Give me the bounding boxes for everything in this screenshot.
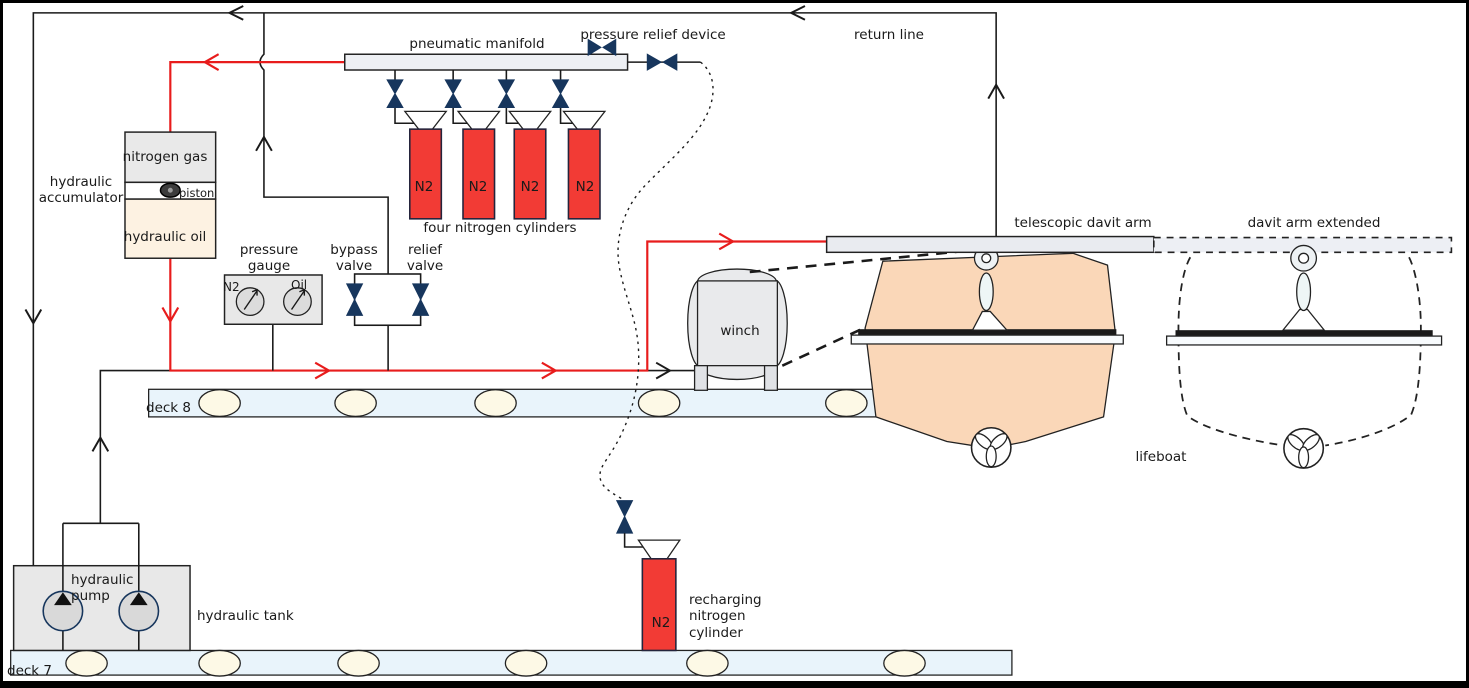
n2-cylinder (642, 559, 676, 651)
return-line-path (25, 6, 1004, 566)
lifeboat-extended-outline (1167, 245, 1442, 468)
bypass-valve-icon (347, 284, 363, 316)
n2-cylinder (410, 129, 442, 219)
diagram-canvas (3, 3, 1466, 681)
recharge-hose-dotted (600, 62, 713, 499)
n2-cylinder (463, 129, 495, 219)
telescopic-davit-arm (827, 237, 1154, 253)
deck-7-band (11, 650, 1012, 676)
lifting-beam (1175, 330, 1432, 336)
pressure-gauge-panel (225, 275, 323, 371)
recharge-isolation-valve-icon (628, 54, 701, 70)
hydraulic-tank (14, 566, 190, 651)
propeller-icon (1284, 429, 1323, 468)
winch (688, 269, 788, 390)
bypass-relief-valve-loop (347, 274, 429, 371)
winch-feed-line (647, 363, 699, 379)
relief-valve-icon (413, 284, 429, 316)
propeller-icon (972, 428, 1011, 467)
deck-8-band (149, 389, 882, 417)
manifold-branch-line (256, 13, 388, 274)
hydraulic-accumulator (125, 132, 216, 258)
n2-cylinder (568, 129, 600, 219)
lifeboat-stowed (851, 246, 1123, 467)
pressure-relief-valve-icon (588, 39, 616, 55)
system-diagram: pneumatic manifold pressure relief devic… (0, 0, 1469, 688)
lifting-hook-icon (1283, 245, 1324, 330)
recharging-nitrogen-cylinder (617, 501, 680, 651)
nitrogen-cylinder-bank (387, 70, 605, 219)
n2-cylinder (514, 129, 546, 219)
pneumatic-manifold (345, 54, 628, 70)
